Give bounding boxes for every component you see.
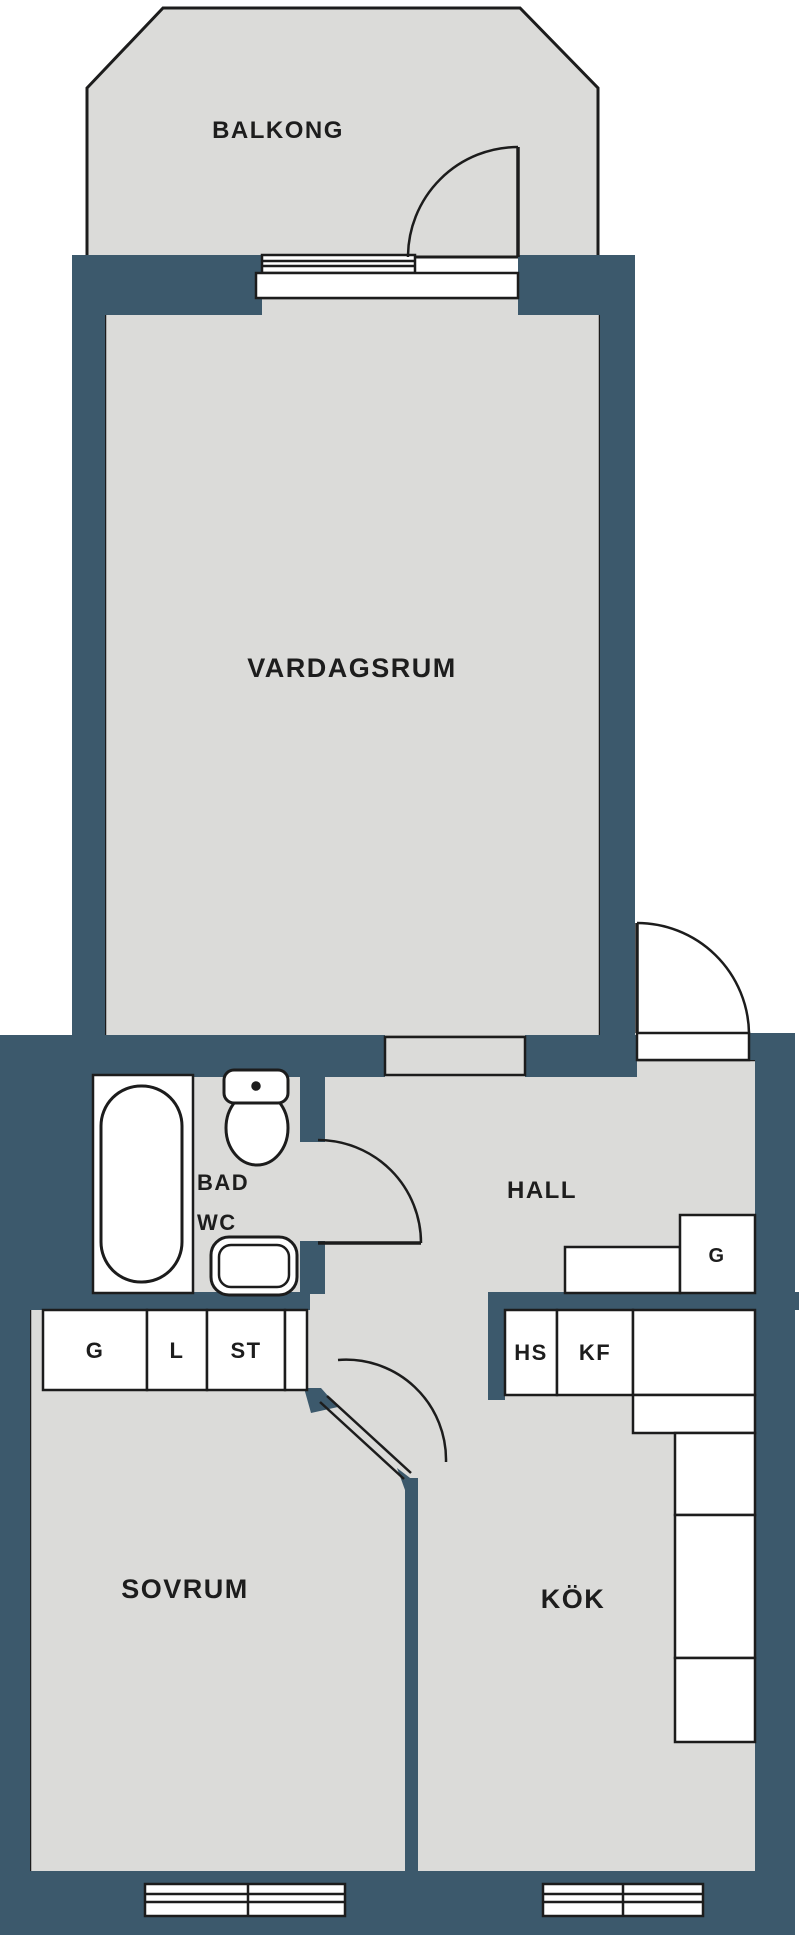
sink-basin <box>219 1245 289 1287</box>
wall-segment <box>525 1035 637 1077</box>
label-wardrobe-st-bedroom: ST <box>230 1338 261 1363</box>
livingroom-hall-passage <box>385 1037 525 1075</box>
balcony-window <box>256 255 518 298</box>
bathtub <box>101 1086 182 1282</box>
label-hall: HALL <box>507 1177 577 1204</box>
hall-cabinet <box>565 1247 680 1293</box>
kitchen-window <box>543 1884 703 1916</box>
label-balkong: BALKONG <box>212 117 344 144</box>
balcony-window-sill <box>256 273 518 298</box>
wall-segment <box>600 255 635 1035</box>
kitchen-counter <box>633 1310 755 1395</box>
label-kok: KÖK <box>541 1584 606 1614</box>
kitchen-counter <box>675 1658 755 1742</box>
wall-segment <box>300 1241 325 1294</box>
label-cabinet-hs: HS <box>514 1340 548 1365</box>
kitchen-counter <box>633 1395 755 1433</box>
label-wardrobe-g-bedroom: G <box>86 1338 105 1363</box>
floor-plan-drawing: BALKONG VARDAGSRUM BAD WC HALL G L ST G … <box>0 0 799 1935</box>
label-cabinet-kf: KF <box>579 1340 611 1365</box>
label-wardrobe-g-hall: G <box>708 1245 725 1267</box>
entry-door-arc <box>637 923 749 1033</box>
wall-segment <box>405 1478 418 1873</box>
label-wc: WC <box>197 1210 237 1235</box>
label-bad: BAD <box>197 1170 249 1195</box>
wall-segment <box>0 1075 93 1295</box>
kitchen-counter <box>675 1433 755 1515</box>
wall-segment <box>300 1075 325 1142</box>
entry-door <box>637 923 749 1033</box>
wall-segment <box>488 1292 799 1310</box>
bedroom-window <box>145 1884 345 1916</box>
wall-segment <box>72 255 262 315</box>
wardrobe-sliver-bedroom <box>285 1310 307 1390</box>
wall-segment <box>72 255 105 1037</box>
wall-segment <box>0 1035 385 1077</box>
kitchen-counter <box>675 1515 755 1658</box>
toilet-flush-button <box>253 1083 260 1090</box>
floor-plan: BALKONG VARDAGSRUM BAD WC HALL G L ST G … <box>0 0 799 1935</box>
wall-segment <box>488 1292 505 1400</box>
entry-door-threshold <box>637 1033 749 1060</box>
label-vardagsrum: VARDAGSRUM <box>247 653 457 683</box>
label-sovrum: SOVRUM <box>121 1574 249 1604</box>
label-wardrobe-l-bedroom: L <box>170 1338 185 1363</box>
wall-segment <box>755 1033 795 1935</box>
